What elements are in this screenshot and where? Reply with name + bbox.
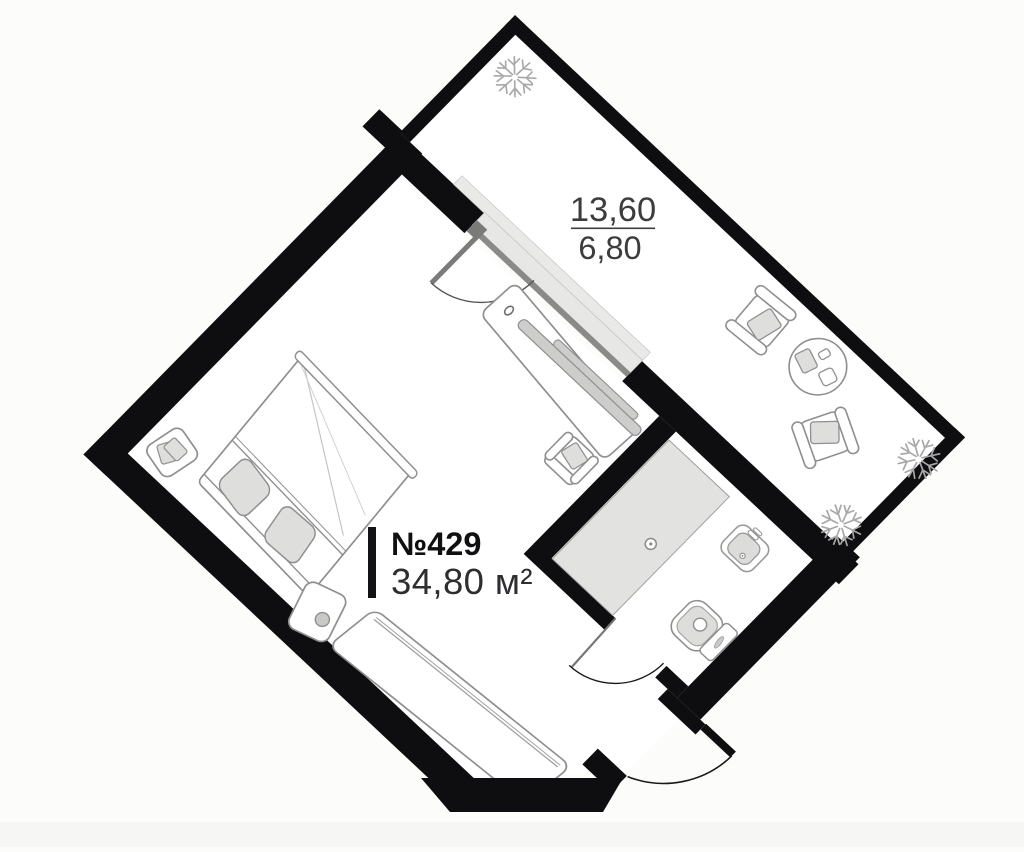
svg-text:13,60: 13,60 — [570, 191, 656, 229]
svg-text:№429: №429 — [391, 526, 481, 562]
svg-text:6,80: 6,80 — [578, 230, 641, 266]
svg-text:34,80 м²: 34,80 м² — [391, 561, 533, 602]
